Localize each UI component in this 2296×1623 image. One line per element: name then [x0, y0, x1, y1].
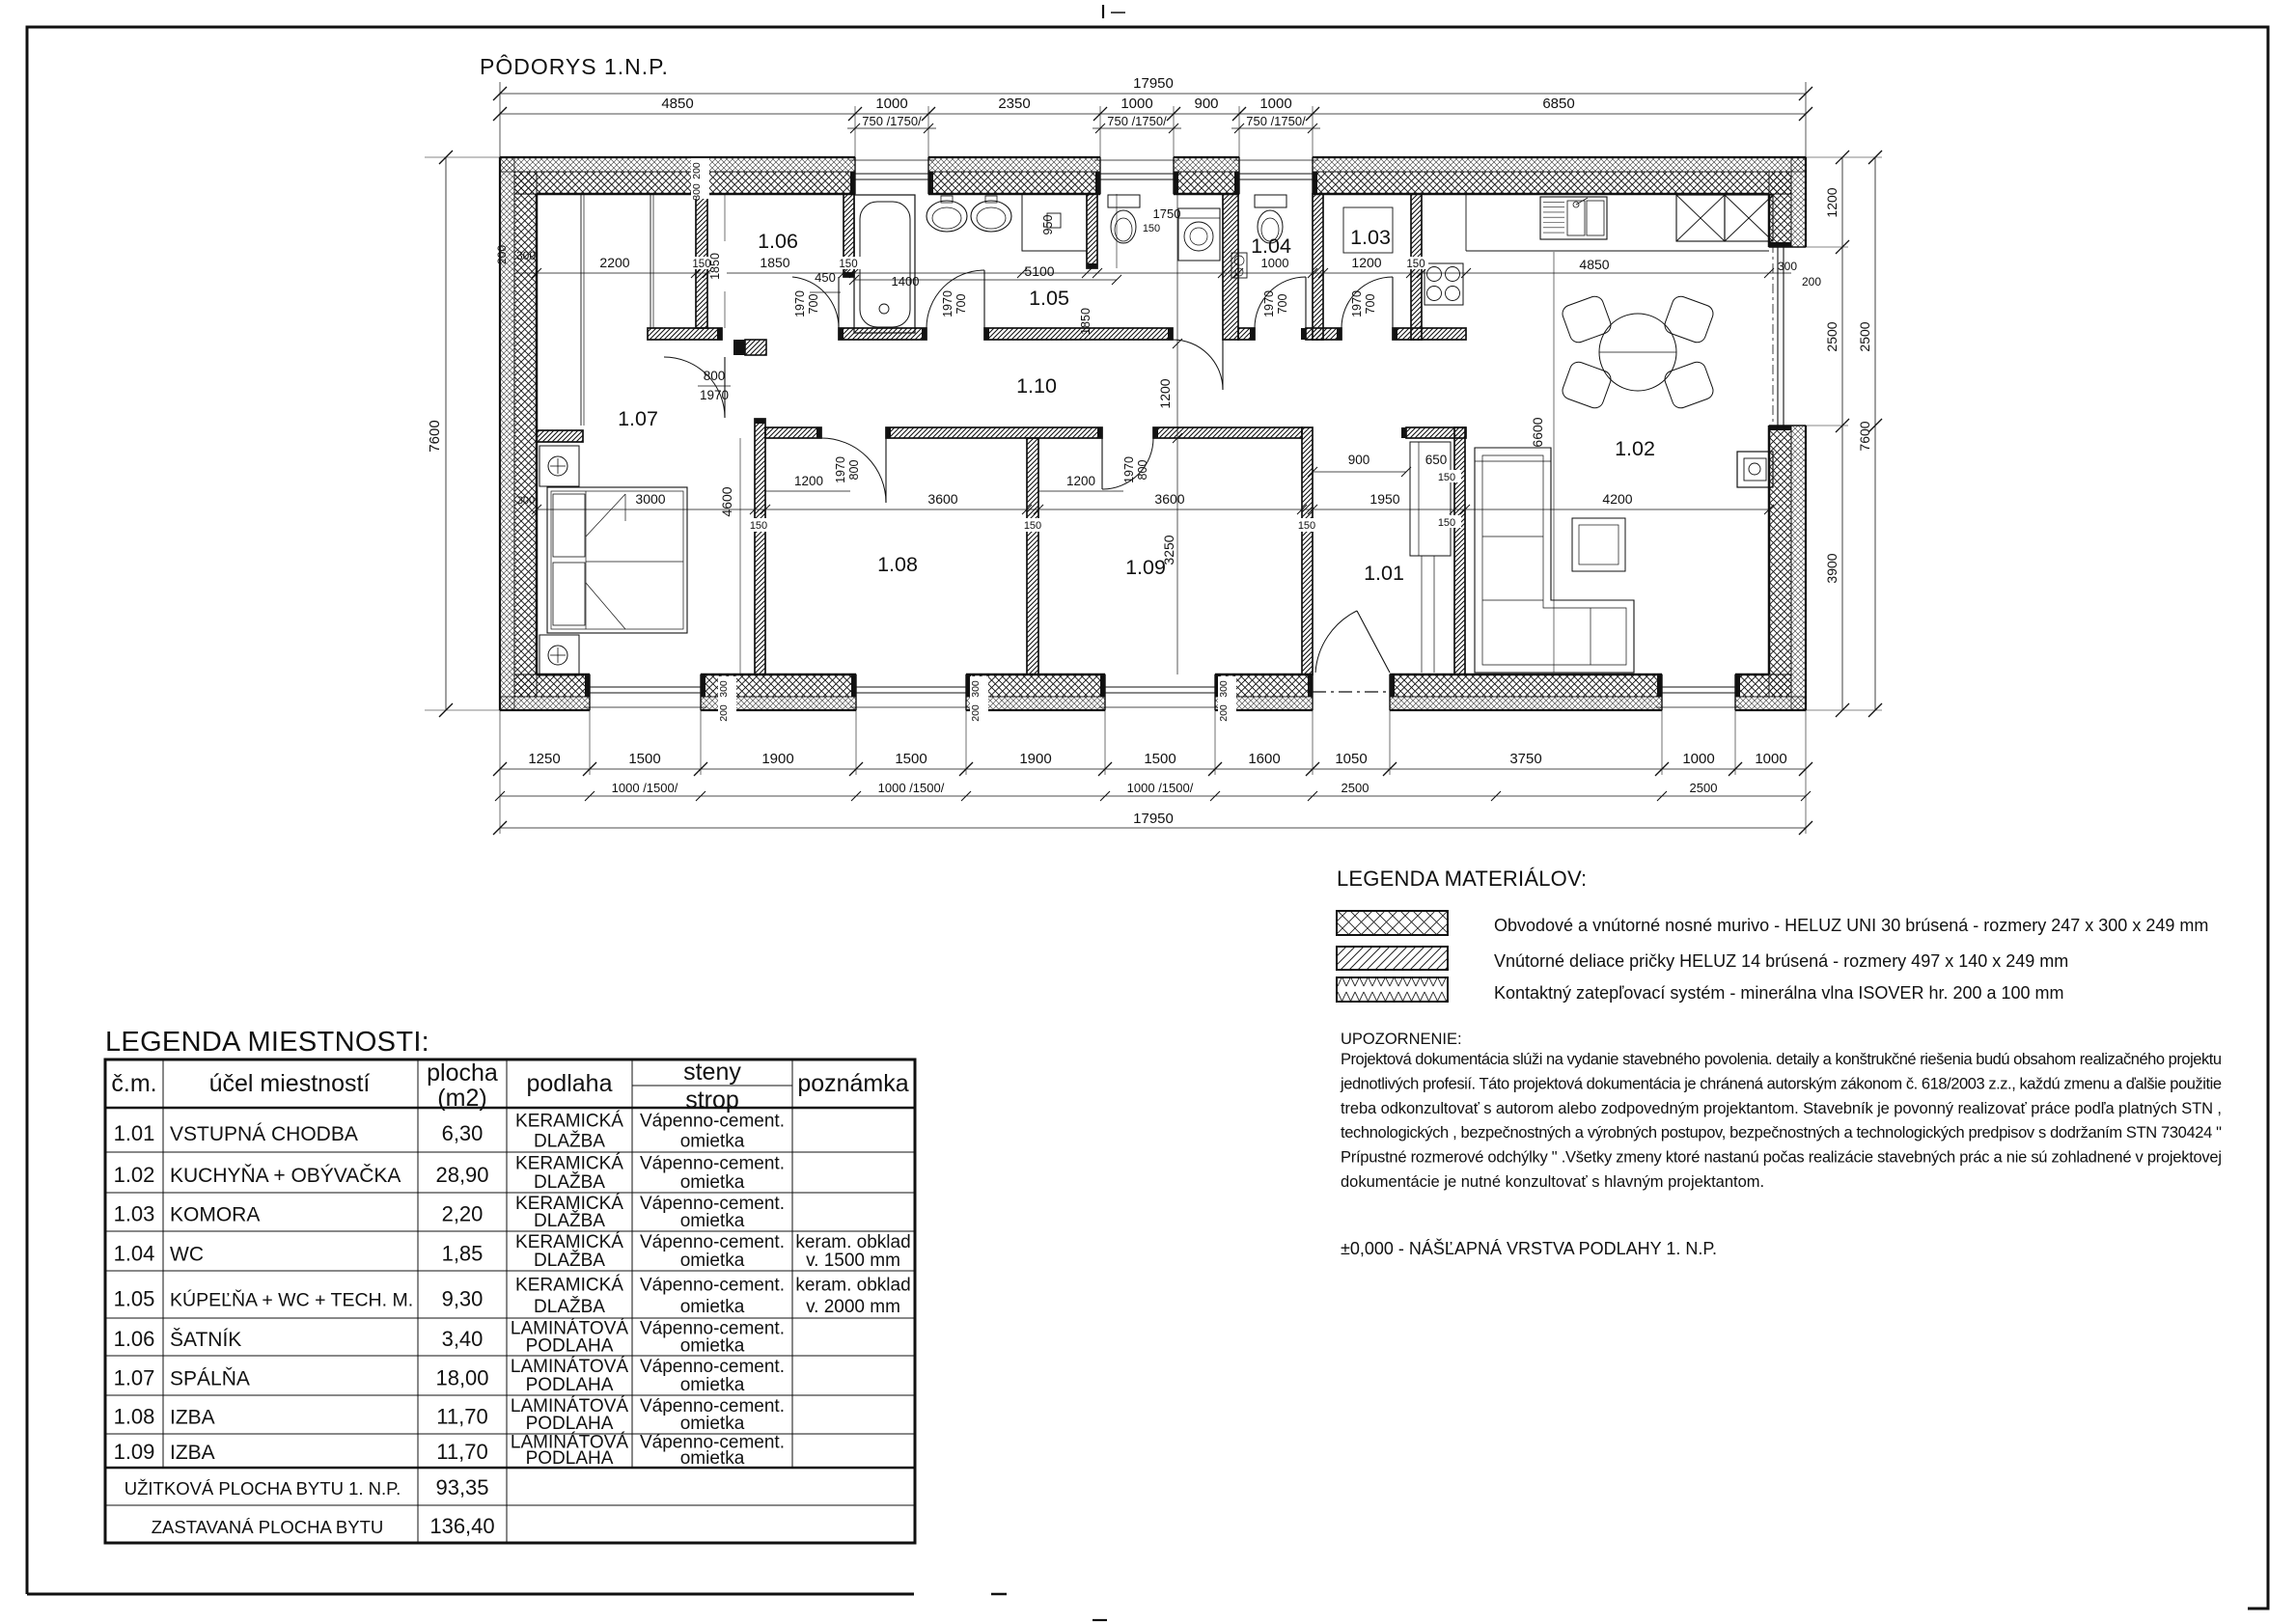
- svg-text:150: 150: [1024, 520, 1041, 532]
- svg-text:strop: strop: [685, 1087, 739, 1114]
- svg-text:800: 800: [1136, 460, 1149, 481]
- svg-text:1970: 1970: [1262, 290, 1276, 317]
- svg-text:2350: 2350: [998, 96, 1030, 112]
- svg-text:DLAŽBA: DLAŽBA: [534, 1171, 605, 1193]
- svg-text:1500: 1500: [628, 751, 660, 767]
- svg-text:omietka: omietka: [680, 1211, 745, 1231]
- svg-text:ŠATNÍK: ŠATNÍK: [170, 1329, 241, 1351]
- svg-text:450: 450: [815, 270, 836, 285]
- svg-text:LEGENDA MIESTNOSTI:: LEGENDA MIESTNOSTI:: [105, 1027, 429, 1058]
- svg-text:1200: 1200: [1824, 187, 1840, 217]
- svg-text:1.08: 1.08: [877, 553, 918, 576]
- svg-text:1.03: 1.03: [114, 1202, 155, 1226]
- svg-text:1.07: 1.07: [114, 1365, 155, 1389]
- svg-text:700: 700: [807, 294, 820, 315]
- svg-text:Vnútorné deliace pričky HELUZ: Vnútorné deliace pričky HELUZ 14 brúsená…: [1494, 951, 2068, 971]
- svg-text:Vápenno-cement.: Vápenno-cement.: [640, 1154, 785, 1174]
- svg-text:1600: 1600: [1248, 751, 1280, 767]
- svg-text:PODLAHA: PODLAHA: [526, 1448, 614, 1469]
- svg-text:1050: 1050: [1335, 751, 1367, 767]
- svg-text:Vápenno-cement.: Vápenno-cement.: [640, 1111, 785, 1131]
- svg-text:2500: 2500: [1342, 781, 1369, 795]
- svg-text:750 /1750/: 750 /1750/: [1246, 114, 1306, 128]
- svg-text:200: 200: [718, 704, 730, 722]
- svg-text:IZBA: IZBA: [170, 1407, 215, 1429]
- svg-text:plocha: plocha: [427, 1059, 498, 1087]
- svg-text:UŽITKOVÁ PLOCHA BYTU 1. N.P.: UŽITKOVÁ PLOCHA BYTU 1. N.P.: [124, 1478, 401, 1499]
- svg-text:KOMORA: KOMORA: [170, 1204, 260, 1226]
- svg-text:omietka: omietka: [680, 1251, 745, 1271]
- svg-text:5100: 5100: [1024, 263, 1054, 279]
- svg-text:ZASTAVANÁ PLOCHA BYTU: ZASTAVANÁ PLOCHA BYTU: [152, 1517, 384, 1537]
- svg-text:1200: 1200: [1157, 378, 1173, 408]
- svg-text:17950: 17950: [1133, 75, 1174, 92]
- svg-text:DLAŽBA: DLAŽBA: [534, 1130, 605, 1151]
- svg-text:1970: 1970: [941, 290, 954, 317]
- svg-text:1.04: 1.04: [1251, 234, 1291, 258]
- svg-text:KERAMICKÁ: KERAMICKÁ: [515, 1111, 623, 1131]
- svg-text:28,90: 28,90: [435, 1163, 488, 1187]
- svg-text:1970: 1970: [1122, 456, 1136, 483]
- svg-text:150: 150: [750, 520, 767, 532]
- svg-text:KERAMICKÁ: KERAMICKÁ: [515, 1232, 623, 1252]
- svg-text:LEGENDA MATERIÁLOV:: LEGENDA MATERIÁLOV:: [1337, 867, 1587, 891]
- svg-text:1850: 1850: [1079, 308, 1093, 335]
- svg-text:1000: 1000: [1120, 96, 1152, 112]
- svg-text:300: 300: [1778, 260, 1797, 273]
- svg-text:1500: 1500: [895, 751, 927, 767]
- svg-text:1.04: 1.04: [114, 1241, 155, 1265]
- svg-text:1000: 1000: [1259, 96, 1291, 112]
- svg-text:9,30: 9,30: [442, 1286, 484, 1310]
- svg-text:18,00: 18,00: [435, 1365, 488, 1389]
- svg-text:Vápenno-cement.: Vápenno-cement.: [640, 1276, 785, 1296]
- svg-text:2500: 2500: [1690, 781, 1718, 795]
- svg-text:150: 150: [1406, 259, 1425, 270]
- svg-text:treba odkonzultovať s autorom: treba odkonzultovať s autorom alebo zodp…: [1341, 1100, 2222, 1117]
- svg-text:KERAMICKÁ: KERAMICKÁ: [515, 1154, 623, 1174]
- svg-text:LAMINÁTOVÁ: LAMINÁTOVÁ: [511, 1357, 628, 1377]
- svg-text:Obvodové a vnútorné nosné muri: Obvodové a vnútorné nosné murivo - HELUZ…: [1494, 916, 2208, 935]
- svg-text:PÔDORYS 1.N.P.: PÔDORYS 1.N.P.: [480, 53, 669, 79]
- svg-text:300: 300: [691, 183, 703, 201]
- svg-text:11,70: 11,70: [436, 1440, 487, 1464]
- svg-text:2,20: 2,20: [442, 1202, 484, 1226]
- svg-text:PODLAHA: PODLAHA: [526, 1414, 614, 1434]
- svg-text:300: 300: [718, 680, 730, 698]
- svg-text:1900: 1900: [761, 751, 793, 767]
- svg-text:150: 150: [1298, 520, 1315, 532]
- svg-text:1.05: 1.05: [114, 1286, 155, 1310]
- svg-text:v. 1500 mm: v. 1500 mm: [806, 1251, 900, 1271]
- svg-text:omietka: omietka: [680, 1131, 745, 1151]
- svg-text:1200: 1200: [1066, 474, 1095, 488]
- svg-text:UPOZORNENIE:: UPOZORNENIE:: [1341, 1031, 1462, 1048]
- svg-text:1970: 1970: [700, 388, 729, 402]
- svg-text:6850: 6850: [1542, 96, 1574, 112]
- svg-text:150: 150: [1438, 472, 1455, 483]
- svg-text:150: 150: [1143, 223, 1160, 234]
- svg-text:1850: 1850: [708, 253, 722, 280]
- svg-text:1000: 1000: [1261, 256, 1289, 270]
- svg-text:1200: 1200: [794, 474, 823, 488]
- svg-text:1.01: 1.01: [114, 1121, 155, 1145]
- svg-text:poznámka: poznámka: [797, 1070, 908, 1097]
- svg-text:6,30: 6,30: [442, 1121, 484, 1145]
- svg-text:Vápenno-cement.: Vápenno-cement.: [640, 1357, 785, 1377]
- svg-text:136,40: 136,40: [429, 1514, 494, 1538]
- svg-text:technologických , bezpečnostný: technologických , bezpečnostných a výrob…: [1341, 1124, 2222, 1142]
- svg-text:1.09: 1.09: [114, 1440, 155, 1464]
- svg-text:200: 200: [691, 162, 703, 179]
- svg-text:300: 300: [517, 495, 535, 507]
- svg-text:(m2): (m2): [437, 1085, 486, 1112]
- svg-text:1.02: 1.02: [114, 1163, 155, 1187]
- svg-text:1.08: 1.08: [114, 1405, 155, 1429]
- svg-text:1970: 1970: [1350, 290, 1364, 317]
- svg-text:KUCHYŇA + OBÝVAČKA: KUCHYŇA + OBÝVAČKA: [170, 1165, 401, 1187]
- svg-text:1850: 1850: [760, 255, 789, 270]
- svg-text:1.07: 1.07: [618, 407, 658, 430]
- svg-text:1750: 1750: [1153, 206, 1181, 221]
- svg-text:1000 /1500/: 1000 /1500/: [878, 781, 945, 795]
- svg-text:3750: 3750: [1509, 751, 1541, 767]
- svg-text:1.03: 1.03: [1350, 226, 1391, 249]
- svg-text:200: 200: [495, 245, 509, 264]
- svg-text:150: 150: [1438, 517, 1455, 529]
- svg-text:4850: 4850: [1579, 257, 1609, 272]
- svg-text:omietka: omietka: [680, 1297, 745, 1317]
- svg-text:3,40: 3,40: [442, 1327, 484, 1351]
- svg-text:93,35: 93,35: [435, 1475, 488, 1499]
- svg-text:150: 150: [839, 259, 857, 270]
- svg-text:Kontaktný zatepľovací systém -: Kontaktný zatepľovací systém - minerálna…: [1494, 983, 2064, 1003]
- svg-text:IZBA: IZBA: [170, 1442, 215, 1464]
- svg-text:Prípustné rozmerové odchýlky ": Prípustné rozmerové odchýlky " .Všetky z…: [1341, 1149, 2222, 1167]
- svg-text:podlaha: podlaha: [527, 1070, 613, 1097]
- svg-text:účel miestností: účel miestností: [209, 1070, 371, 1097]
- svg-text:č.m.: č.m.: [111, 1070, 156, 1097]
- svg-text:300: 300: [516, 249, 536, 262]
- svg-text:omietka: omietka: [680, 1335, 745, 1356]
- svg-text:SPÁLŇA: SPÁLŇA: [170, 1367, 250, 1389]
- svg-text:PODLAHA: PODLAHA: [526, 1375, 614, 1395]
- svg-text:1000 /1500/: 1000 /1500/: [1127, 781, 1194, 795]
- svg-text:jednotlivých profesií. Táto pr: jednotlivých profesií. Táto projektová d…: [1340, 1075, 2222, 1092]
- svg-text:WC: WC: [170, 1243, 204, 1265]
- svg-text:KERAMICKÁ: KERAMICKÁ: [515, 1276, 623, 1296]
- svg-text:1900: 1900: [1019, 751, 1051, 767]
- svg-text:3600: 3600: [927, 491, 957, 507]
- svg-text:1.02: 1.02: [1615, 437, 1655, 460]
- svg-text:4200: 4200: [1602, 491, 1632, 507]
- svg-text:200: 200: [1802, 275, 1821, 289]
- svg-text:900: 900: [1348, 453, 1370, 467]
- svg-text:4850: 4850: [661, 96, 693, 112]
- svg-text:Vápenno-cement.: Vápenno-cement.: [640, 1232, 785, 1252]
- svg-text:keram. obklad: keram. obklad: [795, 1232, 910, 1252]
- svg-text:200: 200: [1218, 704, 1230, 722]
- svg-text:650: 650: [1425, 453, 1448, 467]
- svg-text:6600: 6600: [1530, 417, 1545, 447]
- svg-text:1.05: 1.05: [1029, 287, 1069, 310]
- svg-text:dokumentácie je nutné konzulto: dokumentácie je nutné konzultovať s hlav…: [1341, 1173, 1764, 1191]
- svg-text:omietka: omietka: [680, 1414, 745, 1434]
- svg-text:300: 300: [970, 680, 982, 698]
- svg-text:DLAŽBA: DLAŽBA: [534, 1210, 605, 1231]
- svg-text:Projektová dokumentácia slúži: Projektová dokumentácia slúži na vydanie…: [1341, 1051, 2222, 1068]
- svg-text:1.01: 1.01: [1364, 562, 1404, 585]
- svg-text:3900: 3900: [1824, 553, 1840, 583]
- svg-text:950: 950: [1041, 215, 1055, 235]
- svg-text:3600: 3600: [1154, 491, 1184, 507]
- svg-text:800: 800: [704, 369, 726, 383]
- svg-text:1,85: 1,85: [442, 1241, 484, 1265]
- svg-text:1970: 1970: [793, 290, 807, 317]
- svg-text:200: 200: [970, 704, 982, 722]
- svg-text:7600: 7600: [1857, 421, 1872, 451]
- svg-text:1950: 1950: [1369, 491, 1399, 507]
- svg-text:1250: 1250: [528, 751, 560, 767]
- svg-text:2200: 2200: [599, 255, 629, 270]
- svg-text:750 /1750/: 750 /1750/: [862, 114, 922, 128]
- svg-text:1000: 1000: [875, 96, 907, 112]
- svg-text:omietka: omietka: [680, 1448, 745, 1469]
- svg-text:7600: 7600: [427, 420, 443, 452]
- svg-text:±0,000 - NÁŠĽAPNÁ VRSTVA PODL: ±0,000 - NÁŠĽAPNÁ VRSTVA PODLAHY 1. N.P.: [1341, 1238, 1717, 1258]
- svg-text:keram. obklad: keram. obklad: [795, 1276, 910, 1296]
- svg-text:700: 700: [1276, 294, 1289, 315]
- svg-text:1.10: 1.10: [1016, 374, 1057, 398]
- svg-text:1.06: 1.06: [114, 1327, 155, 1351]
- svg-text:1.06: 1.06: [758, 230, 798, 253]
- svg-text:steny: steny: [683, 1059, 741, 1086]
- svg-text:800: 800: [847, 460, 861, 481]
- svg-text:700: 700: [1364, 294, 1377, 315]
- svg-text:VSTUPNÁ CHODBA: VSTUPNÁ CHODBA: [170, 1123, 358, 1145]
- svg-text:PODLAHA: PODLAHA: [526, 1335, 614, 1356]
- svg-text:4600: 4600: [719, 486, 734, 516]
- svg-text:1000: 1000: [1755, 751, 1786, 767]
- svg-text:3000: 3000: [635, 491, 665, 507]
- svg-text:DLAŽBA: DLAŽBA: [534, 1296, 605, 1317]
- svg-text:v. 2000 mm: v. 2000 mm: [806, 1297, 900, 1317]
- svg-text:1200: 1200: [1351, 255, 1381, 270]
- svg-text:1400: 1400: [892, 274, 920, 289]
- svg-text:omietka: omietka: [680, 1172, 745, 1193]
- svg-text:DLAŽBA: DLAŽBA: [534, 1250, 605, 1271]
- svg-text:1500: 1500: [1144, 751, 1176, 767]
- svg-text:17950: 17950: [1133, 811, 1174, 827]
- svg-text:2500: 2500: [1857, 321, 1872, 351]
- svg-text:omietka: omietka: [680, 1375, 745, 1395]
- svg-text:300: 300: [1218, 680, 1230, 698]
- svg-text:1.09: 1.09: [1125, 556, 1166, 579]
- svg-text:1970: 1970: [834, 456, 847, 483]
- svg-text:KÚPEĽŇA + WC + TECH. M.: KÚPEĽŇA + WC + TECH. M.: [170, 1288, 413, 1310]
- svg-text:2500: 2500: [1824, 321, 1840, 351]
- svg-text:1000: 1000: [1682, 751, 1714, 767]
- svg-text:11,70: 11,70: [436, 1405, 487, 1429]
- svg-text:700: 700: [954, 294, 968, 315]
- svg-text:750 /1750/: 750 /1750/: [1107, 114, 1167, 128]
- svg-text:1000 /1500/: 1000 /1500/: [612, 781, 678, 795]
- svg-text:900: 900: [1194, 96, 1218, 112]
